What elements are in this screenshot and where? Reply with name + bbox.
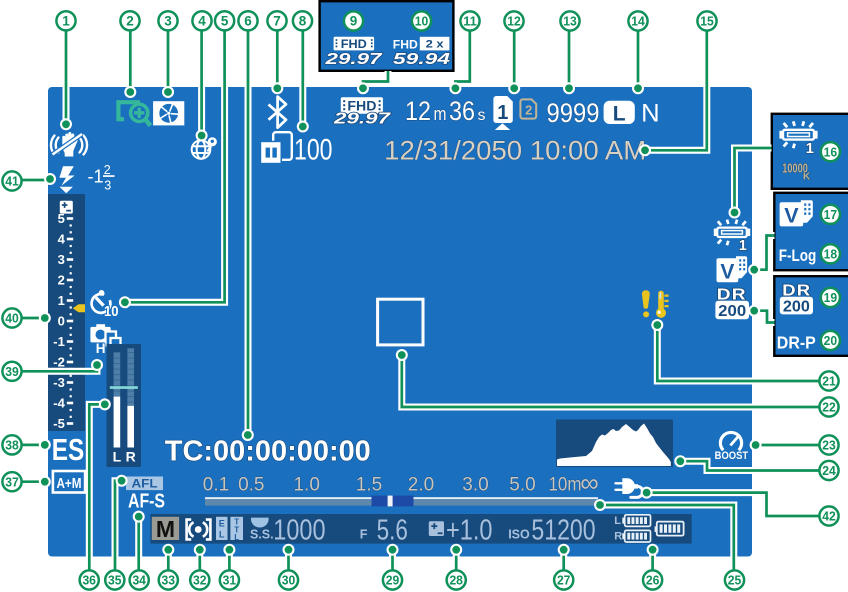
svg-text:1: 1 bbox=[58, 293, 65, 308]
svg-text:36: 36 bbox=[449, 96, 475, 126]
svg-text:28: 28 bbox=[449, 574, 463, 588]
svg-text:33: 33 bbox=[162, 574, 176, 588]
svg-text:-3: -3 bbox=[53, 375, 65, 390]
svg-text:10: 10 bbox=[415, 15, 429, 29]
svg-text:-4: -4 bbox=[53, 396, 65, 411]
svg-text:M: M bbox=[156, 516, 175, 542]
svg-text:-1: -1 bbox=[88, 167, 104, 187]
svg-text:29: 29 bbox=[386, 574, 400, 588]
svg-text:R: R bbox=[126, 449, 136, 465]
svg-text:N: N bbox=[641, 99, 660, 127]
svg-text:12/31/2050 10:00 AM: 12/31/2050 10:00 AM bbox=[384, 135, 646, 165]
svg-text:17: 17 bbox=[824, 208, 838, 222]
svg-text:39: 39 bbox=[5, 365, 19, 379]
svg-text:E: E bbox=[219, 518, 225, 528]
svg-text:6: 6 bbox=[244, 14, 252, 29]
svg-text:0: 0 bbox=[58, 314, 65, 329]
svg-text:3.0: 3.0 bbox=[462, 474, 488, 495]
svg-text:F: F bbox=[360, 527, 368, 541]
svg-text:20: 20 bbox=[824, 334, 838, 348]
svg-text:42: 42 bbox=[822, 510, 836, 524]
svg-text:1.0: 1.0 bbox=[293, 474, 319, 495]
svg-text:3: 3 bbox=[104, 178, 111, 192]
svg-text:5.6: 5.6 bbox=[377, 514, 408, 546]
svg-text:2: 2 bbox=[525, 103, 532, 118]
svg-text:5: 5 bbox=[58, 211, 65, 226]
svg-text:FHD: FHD bbox=[393, 39, 418, 51]
svg-text:1: 1 bbox=[62, 14, 70, 29]
svg-text:29.97: 29.97 bbox=[333, 111, 392, 128]
svg-text:L: L bbox=[234, 533, 239, 542]
svg-text:11: 11 bbox=[463, 15, 477, 29]
svg-text:AFL: AFL bbox=[132, 477, 158, 491]
svg-text:7: 7 bbox=[273, 14, 281, 29]
svg-text:100: 100 bbox=[294, 134, 333, 167]
svg-text:12: 12 bbox=[405, 96, 431, 126]
svg-text:1000: 1000 bbox=[273, 514, 325, 546]
svg-text:35: 35 bbox=[108, 574, 122, 588]
svg-text:9999: 9999 bbox=[547, 98, 600, 128]
svg-text:15: 15 bbox=[700, 15, 714, 29]
svg-text:1.5: 1.5 bbox=[356, 474, 382, 495]
svg-text:19: 19 bbox=[824, 291, 838, 305]
svg-text:3: 3 bbox=[164, 14, 172, 29]
svg-text:200: 200 bbox=[718, 303, 746, 320]
svg-text:40: 40 bbox=[5, 312, 19, 326]
svg-text:24: 24 bbox=[822, 464, 836, 478]
svg-text:5: 5 bbox=[221, 14, 229, 29]
svg-text:2: 2 bbox=[58, 273, 65, 288]
svg-text:∞: ∞ bbox=[580, 467, 599, 497]
svg-text:DR-P: DR-P bbox=[777, 333, 816, 353]
svg-text:10m: 10m bbox=[549, 474, 582, 495]
svg-text:34: 34 bbox=[132, 574, 146, 588]
svg-text:L: L bbox=[219, 529, 225, 539]
svg-text:H: H bbox=[96, 341, 106, 356]
svg-text:V: V bbox=[784, 204, 799, 228]
svg-text:F-Log: F-Log bbox=[779, 246, 817, 265]
svg-text:A+M: A+M bbox=[57, 476, 82, 492]
svg-text:8: 8 bbox=[299, 14, 307, 29]
svg-text:2.0: 2.0 bbox=[408, 474, 434, 495]
svg-text:0.1: 0.1 bbox=[203, 474, 229, 495]
svg-text:5.0: 5.0 bbox=[509, 474, 535, 495]
svg-text:31: 31 bbox=[223, 574, 237, 588]
svg-text:FHD: FHD bbox=[341, 39, 367, 51]
svg-text:9: 9 bbox=[350, 14, 358, 29]
svg-text:4: 4 bbox=[58, 232, 66, 247]
svg-text:m: m bbox=[434, 104, 447, 124]
svg-text:-1: -1 bbox=[53, 334, 65, 349]
svg-text:-2: -2 bbox=[53, 355, 65, 370]
svg-text:ISO: ISO bbox=[508, 527, 530, 541]
svg-text:32: 32 bbox=[193, 574, 207, 588]
svg-text:0.5: 0.5 bbox=[238, 474, 264, 495]
svg-text:41: 41 bbox=[5, 175, 19, 189]
svg-text:10: 10 bbox=[104, 303, 119, 320]
svg-text:2: 2 bbox=[104, 163, 111, 177]
svg-text:3: 3 bbox=[58, 252, 65, 267]
svg-text:R: R bbox=[614, 531, 622, 543]
svg-text:AF-S: AF-S bbox=[128, 490, 165, 512]
svg-text:38: 38 bbox=[5, 439, 19, 453]
svg-text:L: L bbox=[614, 515, 621, 527]
svg-text:TC:00:00:00:00: TC:00:00:00:00 bbox=[165, 436, 371, 468]
svg-text:51200: 51200 bbox=[531, 514, 595, 546]
svg-text:2 x: 2 x bbox=[426, 39, 445, 51]
svg-text:1: 1 bbox=[806, 140, 814, 157]
svg-text:27: 27 bbox=[557, 574, 571, 588]
svg-text:V: V bbox=[720, 260, 734, 283]
svg-text:21: 21 bbox=[822, 375, 836, 389]
svg-text:1: 1 bbox=[739, 238, 747, 254]
svg-text:59.94: 59.94 bbox=[393, 51, 451, 68]
svg-text:23: 23 bbox=[822, 439, 836, 453]
svg-text:4: 4 bbox=[198, 14, 206, 29]
svg-text:1: 1 bbox=[497, 102, 508, 124]
svg-text:s: s bbox=[478, 107, 486, 124]
svg-text:BOOST: BOOST bbox=[715, 450, 749, 462]
svg-text:22: 22 bbox=[822, 401, 836, 415]
svg-text:36: 36 bbox=[82, 574, 96, 588]
svg-text:2: 2 bbox=[126, 14, 134, 29]
svg-text:37: 37 bbox=[5, 475, 19, 489]
svg-text:-5: -5 bbox=[53, 416, 65, 431]
svg-text:26: 26 bbox=[646, 574, 660, 588]
svg-text:25: 25 bbox=[728, 574, 742, 588]
svg-text:200: 200 bbox=[783, 298, 810, 315]
svg-text:18: 18 bbox=[824, 248, 838, 262]
svg-text:ES: ES bbox=[52, 432, 85, 467]
svg-text:K: K bbox=[803, 172, 811, 183]
svg-text:S.S.: S.S. bbox=[250, 527, 274, 541]
svg-text:L: L bbox=[113, 449, 122, 465]
svg-text:30: 30 bbox=[282, 574, 296, 588]
svg-text:12: 12 bbox=[507, 15, 521, 29]
svg-text:14: 14 bbox=[631, 15, 645, 29]
svg-text:16: 16 bbox=[824, 145, 838, 159]
svg-text:L: L bbox=[613, 102, 626, 125]
svg-text:29.97: 29.97 bbox=[324, 51, 383, 68]
svg-text:+1.0: +1.0 bbox=[446, 514, 493, 546]
svg-text:13: 13 bbox=[563, 15, 577, 29]
